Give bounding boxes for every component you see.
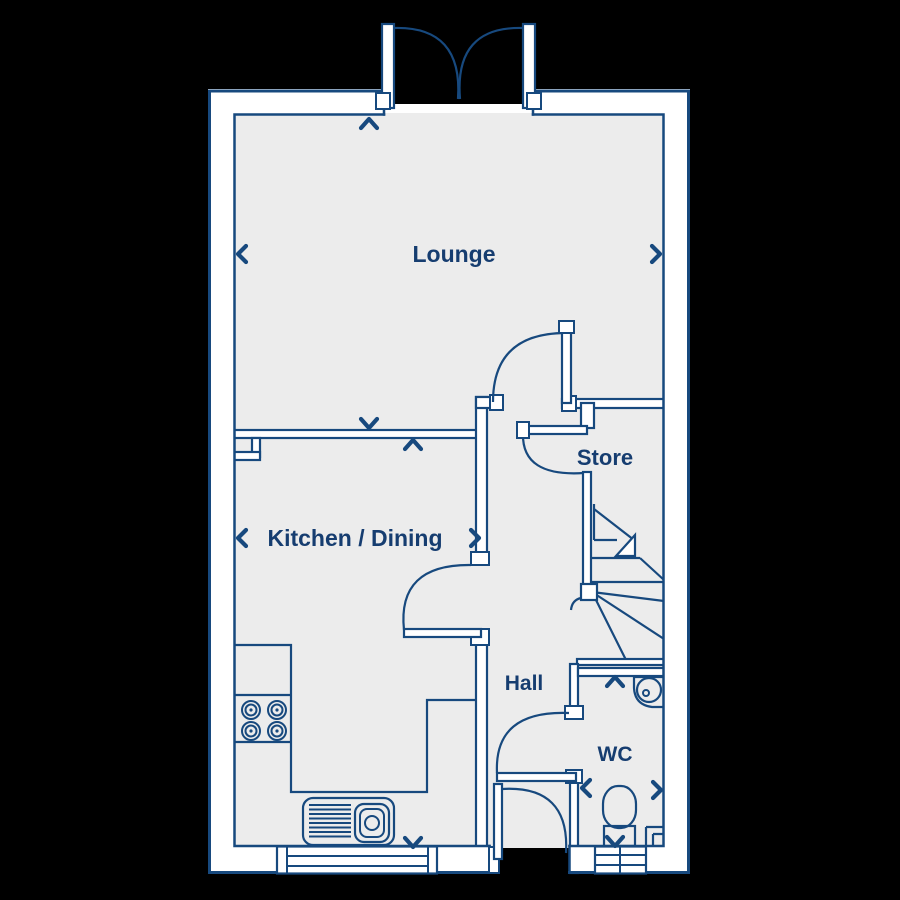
- room-label-store: Store: [577, 445, 633, 470]
- newel-post: [581, 584, 597, 600]
- lounge-door-leaf: [562, 327, 571, 403]
- hob-burner: [268, 701, 286, 719]
- kitchen-hall-wall-lower: [476, 637, 487, 847]
- stair-stringer-wall: [583, 472, 591, 588]
- wc-door-leaf: [497, 773, 576, 781]
- hob-burner: [268, 722, 286, 740]
- french-door-right-hinge-block: [527, 93, 541, 109]
- kitchen-door-leaf: [404, 629, 481, 637]
- kitchen-door-jamb: [471, 552, 489, 565]
- floor-plan: Lounge Kitchen / Dining Store Hall WC: [0, 0, 900, 900]
- kitchen-window: [277, 847, 437, 874]
- lounge-store-wall: [562, 399, 665, 408]
- wc-window: [595, 847, 646, 874]
- lounge-door-jamb: [490, 395, 503, 410]
- room-label-lounge: Lounge: [412, 241, 495, 267]
- store-door-leaf: [521, 426, 587, 434]
- room-label-wc: WC: [598, 743, 633, 766]
- divider-nib-horizontal: [233, 452, 260, 460]
- front-door-leaf: [494, 784, 502, 859]
- room-label-kitchen: Kitchen / Dining: [267, 525, 442, 551]
- lounge-door-leaf-cap: [559, 321, 574, 333]
- stairs-wc-wall: [578, 668, 665, 676]
- hob-burner: [242, 722, 260, 740]
- french-door-right-arc: [460, 28, 523, 99]
- lounge-kitchen-divider: [233, 430, 477, 438]
- stair-bottom-edge: [577, 659, 665, 665]
- store-door-jamb: [581, 403, 594, 428]
- store-door-leaf-cap: [517, 422, 529, 438]
- french-door-left-hinge-block: [376, 93, 390, 109]
- french-door-left-arc: [394, 28, 458, 99]
- room-label-hall: Hall: [505, 672, 544, 695]
- hob-burner: [242, 701, 260, 719]
- floor-area: [233, 113, 665, 848]
- french-doors: [376, 24, 541, 109]
